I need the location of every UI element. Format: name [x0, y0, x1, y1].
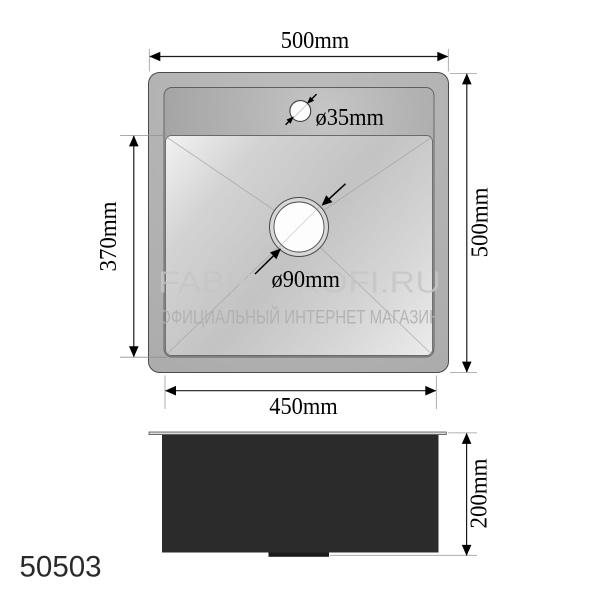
- svg-text:ø35mm: ø35mm: [316, 104, 385, 131]
- svg-text:ø90mm: ø90mm: [272, 266, 341, 293]
- svg-text:500mm: 500mm: [281, 27, 350, 54]
- svg-text:50503: 50503: [20, 551, 102, 584]
- svg-text:ОФИЦИАЛЬНЫЙ ИНТЕРНЕТ МАГАЗИН: ОФИЦИАЛЬНЫЙ ИНТЕРНЕТ МАГАЗИН: [159, 305, 440, 329]
- svg-text:370mm: 370mm: [95, 202, 122, 272]
- svg-text:450mm: 450mm: [269, 393, 338, 420]
- svg-text:200mm: 200mm: [466, 459, 493, 529]
- svg-text:500mm: 500mm: [467, 188, 494, 258]
